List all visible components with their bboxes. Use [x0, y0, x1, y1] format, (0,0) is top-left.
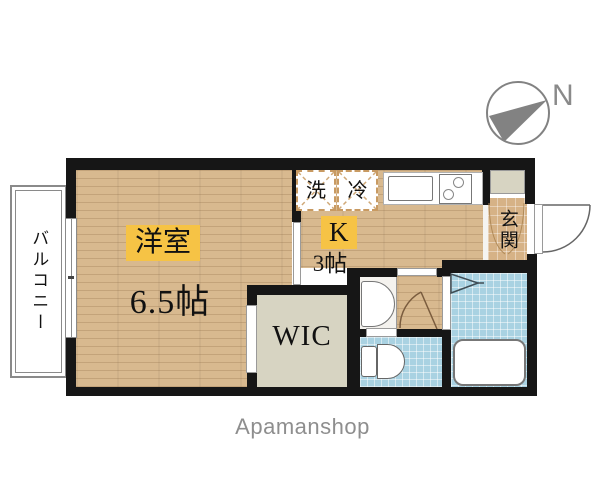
- balcony: バルコニー: [10, 185, 67, 378]
- entrance-door-arc-icon: [543, 205, 590, 252]
- washer-label: 洗: [298, 180, 334, 203]
- floorplan-canvas: バルコニー 洗 冷: [0, 0, 600, 480]
- wall-toilet-top-left: [347, 329, 366, 337]
- kitchen-label: K: [321, 216, 357, 249]
- entrance-door-leaf: [534, 204, 543, 254]
- compass-icon: [487, 82, 549, 144]
- bath-door: [442, 276, 451, 330]
- entrance-label: 玄関: [496, 209, 518, 251]
- balcony-inner-rail: バルコニー: [15, 190, 62, 373]
- fridge-space: 冷: [337, 170, 378, 211]
- wic-door: [246, 305, 257, 373]
- window-mid-tick: [68, 276, 74, 279]
- wall-counter-entrance: [482, 168, 490, 205]
- wall-right-lower: [527, 254, 537, 387]
- kitchen-sink: [388, 176, 433, 201]
- entrance-step-strip: [483, 205, 488, 260]
- toilet-tank: [361, 346, 377, 377]
- western-room-label: 洋室: [126, 225, 200, 261]
- wall-bottom: [66, 387, 537, 396]
- bathtub: [453, 339, 526, 386]
- kitchen-size: 3帖: [300, 251, 360, 277]
- stove: [439, 174, 472, 204]
- wall-wic-right: [347, 268, 360, 387]
- stove-burner-icon: [443, 189, 454, 200]
- wall-toilet-top-right: [397, 329, 442, 337]
- balcony-label: バルコニー: [29, 229, 49, 334]
- wall-wic-left-upper: [247, 295, 257, 305]
- wall-wic-top: [247, 285, 360, 295]
- fridge-label: 冷: [339, 180, 376, 203]
- window-west: [65, 218, 77, 338]
- hallway-door-opening: [397, 268, 437, 276]
- compass-north-label: N: [552, 79, 574, 112]
- washer-space: 洗: [296, 170, 336, 211]
- wic-label: WIC: [257, 320, 347, 353]
- stove-burner-icon: [453, 177, 464, 188]
- wall-bath-top: [442, 260, 537, 273]
- watermark: Apamanshop: [200, 414, 405, 440]
- wall-right-upper: [525, 158, 535, 204]
- hallway-floor: [397, 268, 442, 329]
- shoe-cabinet: [490, 170, 525, 194]
- entrance-label-wrap: 玄関: [495, 202, 519, 258]
- wall-wic-left-lower: [247, 373, 257, 387]
- toilet-door: [366, 328, 397, 337]
- western-room-size: 6.5帖: [100, 283, 240, 322]
